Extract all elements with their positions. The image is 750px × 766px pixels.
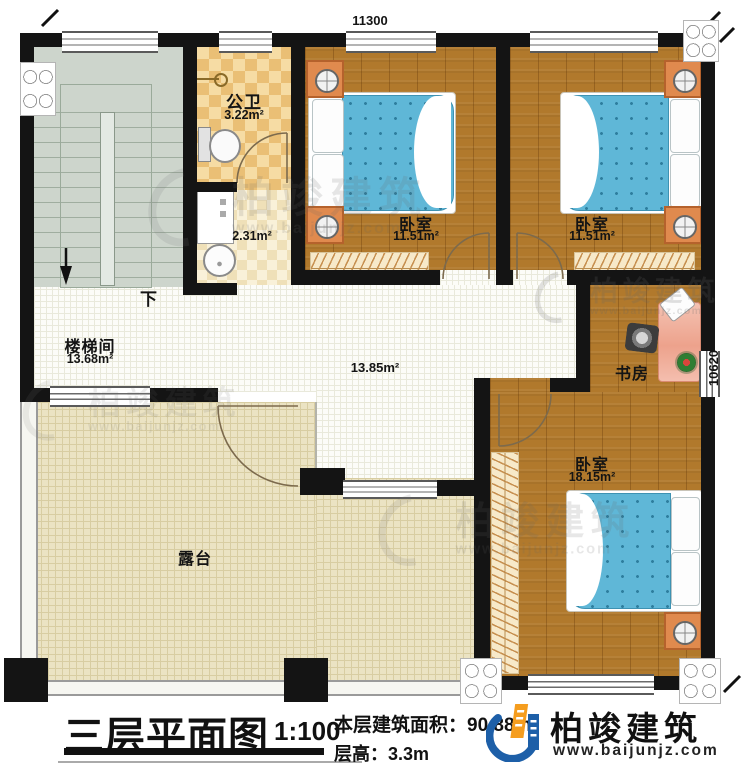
stairs-down-arrow: [60, 266, 72, 285]
window: [219, 31, 272, 53]
dimension-tick: [720, 28, 734, 42]
company-website: www.baijunjz.com: [553, 742, 719, 760]
corner-column-decoration: [683, 20, 719, 62]
floor-area-label: 本层建筑面积：: [334, 715, 467, 736]
bedroom1-area: 11.51m²: [381, 229, 451, 243]
window: [346, 31, 436, 53]
bedroom3-area: 18.15m²: [555, 470, 629, 484]
wall: [291, 270, 440, 285]
wall: [496, 47, 510, 270]
corner-column-decoration: [679, 658, 721, 704]
terrace-label: 露台: [165, 545, 225, 569]
wall: [150, 388, 218, 402]
bathroom-area: 3.22m²: [214, 108, 274, 122]
wall: [474, 378, 490, 690]
wall: [183, 47, 197, 285]
stairwell-area: 13.68m²: [40, 352, 140, 366]
wall: [496, 270, 513, 285]
washroom-area: 2.31m²: [222, 229, 282, 243]
wall: [576, 285, 590, 392]
window: [343, 480, 437, 499]
window: [528, 674, 654, 695]
window: [62, 31, 158, 53]
wall: [291, 47, 305, 285]
dimension-tick: [724, 676, 740, 692]
window: [530, 31, 658, 53]
floor-height-value: 3.3m: [388, 744, 429, 764]
dimension-right: 10620: [706, 332, 726, 404]
floor-plan: 楼梯间 13.68m² 下 公卫 3.22m² 2.31m² 卧室 11.51m…: [0, 0, 750, 766]
title-underline-thin: [58, 761, 362, 763]
floor-height-label: 层高：: [334, 744, 388, 764]
company-logo-icon: [486, 698, 544, 762]
study-label: 书房: [602, 360, 662, 384]
bedroom2-area: 11.51m²: [557, 229, 627, 243]
wall: [567, 270, 715, 285]
floor-height-row: 层高：3.3m: [334, 740, 429, 766]
wall: [437, 480, 475, 496]
wall: [197, 182, 237, 192]
dimension-tick: [42, 10, 58, 26]
wall: [300, 468, 345, 495]
corner-column-decoration: [20, 62, 56, 116]
plan-scale: 1:100: [274, 716, 341, 747]
stairs-down-label: 下: [134, 285, 164, 310]
door-arc: [499, 394, 551, 446]
window: [50, 386, 150, 407]
hall-area: 13.85m²: [340, 360, 410, 375]
wall: [550, 378, 590, 392]
wall: [183, 283, 237, 295]
dimension-top: 11300: [330, 13, 410, 28]
door-arc: [237, 133, 287, 183]
title-underline: [64, 748, 324, 755]
wall: [20, 388, 50, 402]
door-arc: [218, 406, 298, 486]
